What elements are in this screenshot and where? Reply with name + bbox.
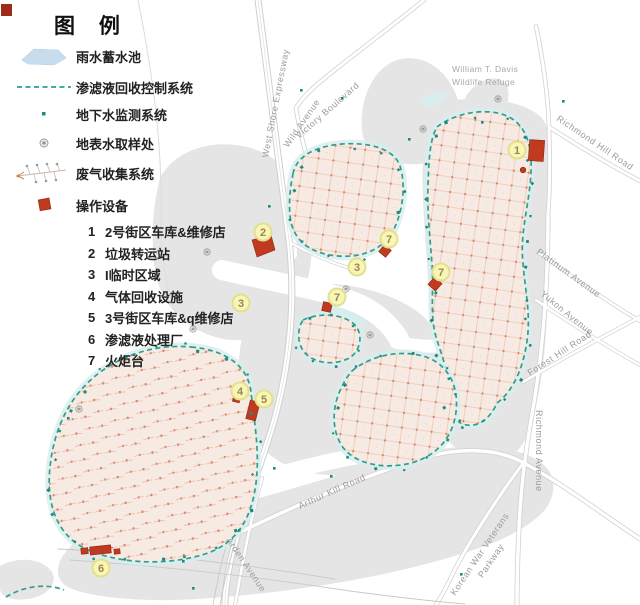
landfill-mound-south xyxy=(334,353,456,465)
equipment-label: 渗滤液处理厂 xyxy=(105,330,183,349)
monitoring-well-dot xyxy=(562,100,565,103)
equipment-number: 4 xyxy=(88,289,105,304)
monitoring-well-dot xyxy=(330,475,333,478)
monitoring-well-dot xyxy=(268,205,271,208)
equipment-number: 1 xyxy=(88,224,105,239)
equipment-icon xyxy=(12,192,76,218)
equipment-label: 垃圾转运站 xyxy=(105,244,170,263)
monitoring-well-dot xyxy=(460,573,463,576)
marker-7b: 7 xyxy=(329,289,346,306)
monitoring-well-dot xyxy=(301,240,304,243)
monitoring-well-dot xyxy=(481,121,484,124)
pond-icon xyxy=(12,44,76,68)
equipment-list-item: 6渗滤液处理厂 xyxy=(88,329,234,351)
equipment-6-plant-a xyxy=(81,548,89,555)
corner-red-square xyxy=(1,4,12,16)
gas-collection-icon xyxy=(12,158,76,188)
svg-text:7: 7 xyxy=(334,292,340,304)
monitoring-well-dot xyxy=(308,317,311,320)
legend-item-groundwater: 地下水监测系统 xyxy=(12,102,167,126)
svg-text:1: 1 xyxy=(514,145,520,157)
legend-label: 雨水蓄水池 xyxy=(76,47,141,66)
monitoring-well-dot xyxy=(238,529,241,532)
svg-text:6: 6 xyxy=(98,563,104,575)
equipment-label: 气体回收设施 xyxy=(105,287,183,306)
legend-label: 地下水监测系统 xyxy=(76,105,167,124)
monitoring-well-dot xyxy=(526,240,529,243)
legend-item-sampling: 地表水取样处 xyxy=(12,131,154,155)
marker-4: 4 xyxy=(232,383,249,400)
legend-item-leachate: 渗滤液回收控制系统 xyxy=(12,75,193,99)
svg-text:7: 7 xyxy=(386,234,392,246)
monitoring-well-dot xyxy=(162,557,166,561)
marker-7c: 7 xyxy=(433,264,450,281)
legend-item-gas: 废气收集系统 xyxy=(12,158,154,188)
equipment-number: 2 xyxy=(88,246,105,261)
marker-1: 1 xyxy=(509,142,526,159)
equipment-number: 7 xyxy=(88,353,105,368)
monitoring-well-dot xyxy=(250,509,254,513)
svg-text:4: 4 xyxy=(237,386,244,398)
monitoring-well-dot xyxy=(330,314,333,317)
legend-label: 废气收集系统 xyxy=(76,164,154,183)
wildlife-refuge-label-line1: William T. Davis xyxy=(452,64,518,74)
monitoring-well-dot xyxy=(412,352,415,355)
dashed-line-icon xyxy=(12,75,76,99)
road-label-richmond-avenue: Richmond Avenue xyxy=(534,410,544,492)
equipment-list-item: 2垃圾转运站 xyxy=(88,243,234,265)
marker-7a: 7 xyxy=(381,231,398,248)
equipment-label: 2号街区车库&维修店 xyxy=(105,222,226,241)
legend-label: 地表水取样处 xyxy=(76,134,154,153)
svg-text:2: 2 xyxy=(260,227,266,239)
legend-title: 图 例 xyxy=(54,10,129,40)
wildlife-refuge-label-line2: Wildlife Refuge xyxy=(452,77,515,87)
monitoring-well-dot xyxy=(529,215,531,217)
monitoring-well-dot xyxy=(341,97,344,100)
equipment-label: 3号街区车库&q维修店 xyxy=(105,308,234,327)
marker-2: 2 xyxy=(255,224,272,241)
equipment-number: 6 xyxy=(88,332,105,347)
monitoring-well-dot xyxy=(300,89,303,92)
equipment-6-plant-c xyxy=(114,549,120,555)
svg-text:3: 3 xyxy=(354,262,360,274)
marker-3a: 3 xyxy=(349,259,366,276)
legend-label: 操作设备 xyxy=(76,196,128,215)
monitoring-well-dot xyxy=(246,373,248,375)
legend-item-equipment: 操作设备 xyxy=(12,191,128,219)
marker-5: 5 xyxy=(256,391,273,408)
equipment-list-item: 12号街区车库&维修店 xyxy=(88,221,234,243)
monitoring-well-dot xyxy=(396,211,400,215)
monitoring-well-dot xyxy=(408,138,411,141)
equipment-list-item: 4气体回收设施 xyxy=(88,286,234,308)
landfill-mound-north-lobe xyxy=(299,315,360,363)
monitoring-well-dot xyxy=(67,417,70,420)
monitoring-well-dot xyxy=(182,560,185,563)
monitoring-well-dot xyxy=(403,469,405,471)
equipment-list-item: 53号街区车库&q维修店 xyxy=(88,307,234,329)
equipment-label: I临时区域 xyxy=(105,265,161,284)
equipment-list-item: 3I临时区域 xyxy=(88,264,234,286)
equipment-list: 12号街区车库&维修店2垃圾转运站3I临时区域4气体回收设施53号街区车库&q维… xyxy=(88,221,234,372)
equipment-1-garage xyxy=(528,140,544,162)
marker-6: 6 xyxy=(93,560,110,577)
monitoring-well-dot xyxy=(425,163,428,166)
svg-text:5: 5 xyxy=(261,394,267,406)
equipment-1-dot xyxy=(520,167,526,173)
monitoring-well-dot xyxy=(192,587,195,590)
marker-3b: 3 xyxy=(233,295,250,312)
monitoring-well-dot xyxy=(354,148,356,150)
monitoring-well-dot xyxy=(183,555,186,558)
dot-icon xyxy=(12,102,76,126)
monitoring-well-dot xyxy=(446,367,448,369)
legend-label: 渗滤液回收控制系统 xyxy=(76,78,193,97)
sampling-icon xyxy=(12,131,76,155)
monitoring-well-dot xyxy=(428,258,430,260)
monitoring-well-dot xyxy=(355,365,357,367)
equipment-number: 3 xyxy=(88,267,105,282)
svg-text:7: 7 xyxy=(438,267,444,279)
equipment-list-item: 7火炬台 xyxy=(88,350,234,372)
equipment-number: 5 xyxy=(88,310,105,325)
monitoring-well-dot xyxy=(335,365,338,368)
legend-item-pond: 雨水蓄水池 xyxy=(12,44,141,68)
monitoring-well-dot xyxy=(273,467,276,470)
equipment-label: 火炬台 xyxy=(105,351,144,370)
monitoring-well-dot xyxy=(454,393,456,395)
svg-text:3: 3 xyxy=(238,298,244,310)
